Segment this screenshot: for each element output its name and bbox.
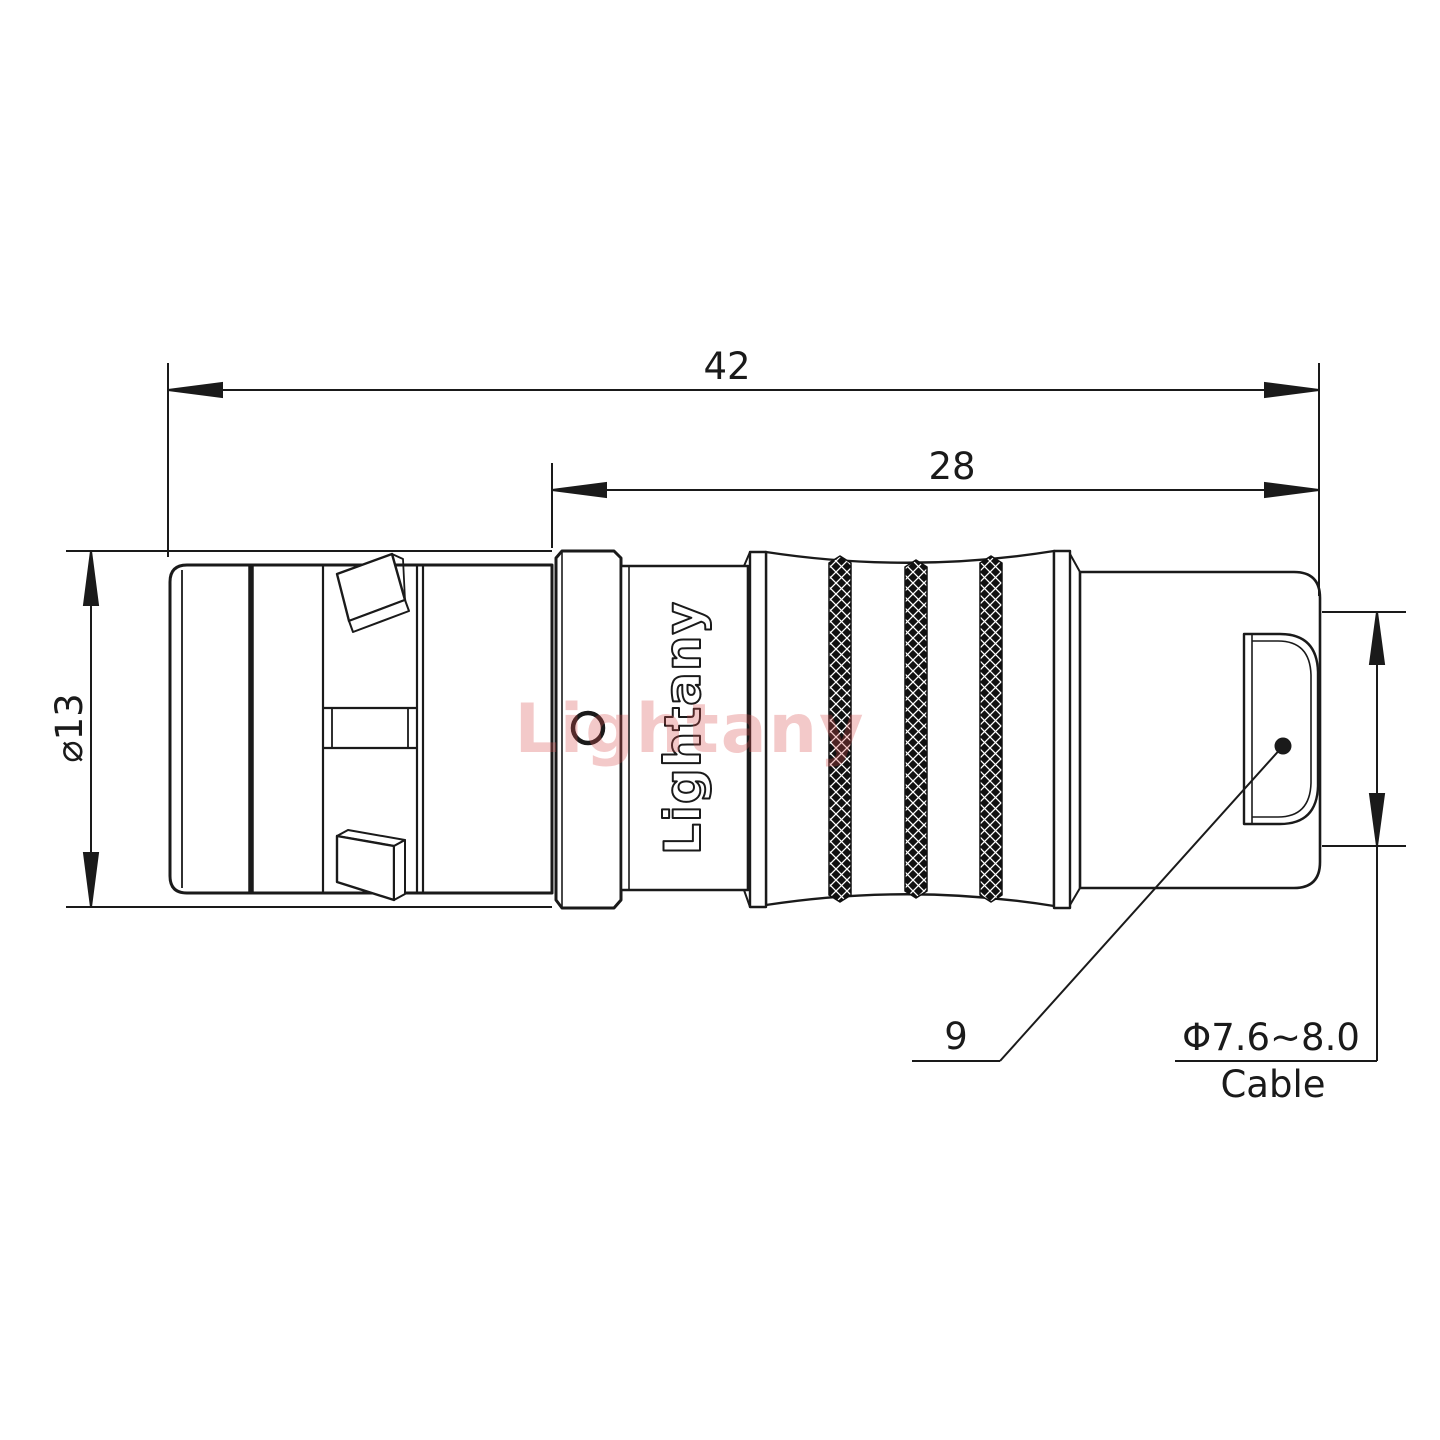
dimension-total-length: 42	[168, 345, 1319, 596]
knurl-flare-right	[1054, 551, 1070, 908]
knurl-band	[980, 556, 1002, 902]
cable-word-label: Cable	[1220, 1063, 1325, 1106]
arrowhead-up	[84, 551, 98, 605]
leader-dot	[1275, 738, 1292, 755]
arrowhead-down	[84, 853, 98, 907]
nut-length-label: 9	[944, 1015, 968, 1058]
arrowhead-left	[168, 383, 222, 397]
technical-drawing-page: Lightany Lightany	[0, 0, 1440, 1440]
dim-body-diameter-label: ⌀13	[48, 693, 91, 762]
arrowhead-right	[1265, 483, 1319, 497]
cable-diameter-label: Φ7.6~8.0	[1182, 1016, 1360, 1059]
rear-barrel	[1080, 572, 1320, 888]
front-shell	[170, 554, 552, 900]
watermark-text: Lightany	[515, 690, 866, 769]
arrowhead-left	[552, 483, 606, 497]
knurl-band	[905, 560, 927, 898]
dim-total-length-label: 42	[703, 345, 750, 388]
dimension-rear-length: 28	[552, 445, 1319, 548]
dim-rear-length-label: 28	[928, 445, 975, 488]
cable-flat	[1244, 634, 1318, 824]
arrowhead-right	[1265, 383, 1319, 397]
arrowhead-down	[1370, 794, 1384, 846]
arrowhead-up	[1370, 612, 1384, 664]
connector-dimension-drawing: Lightany Lightany	[0, 0, 1440, 1440]
